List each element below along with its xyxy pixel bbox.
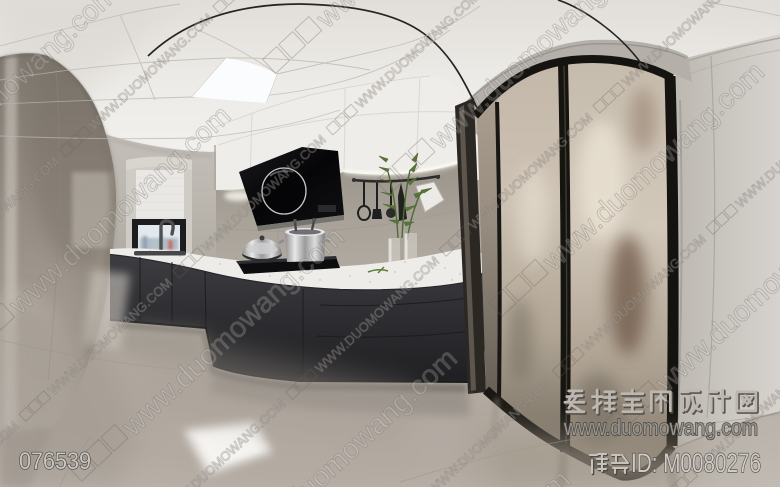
svg-text:ID: M0080276: ID: M0080276 [631, 448, 761, 478]
svg-text:www.duomowang.com: www.duomowang.com [563, 415, 758, 440]
svg-text:076539: 076539 [19, 448, 91, 475]
